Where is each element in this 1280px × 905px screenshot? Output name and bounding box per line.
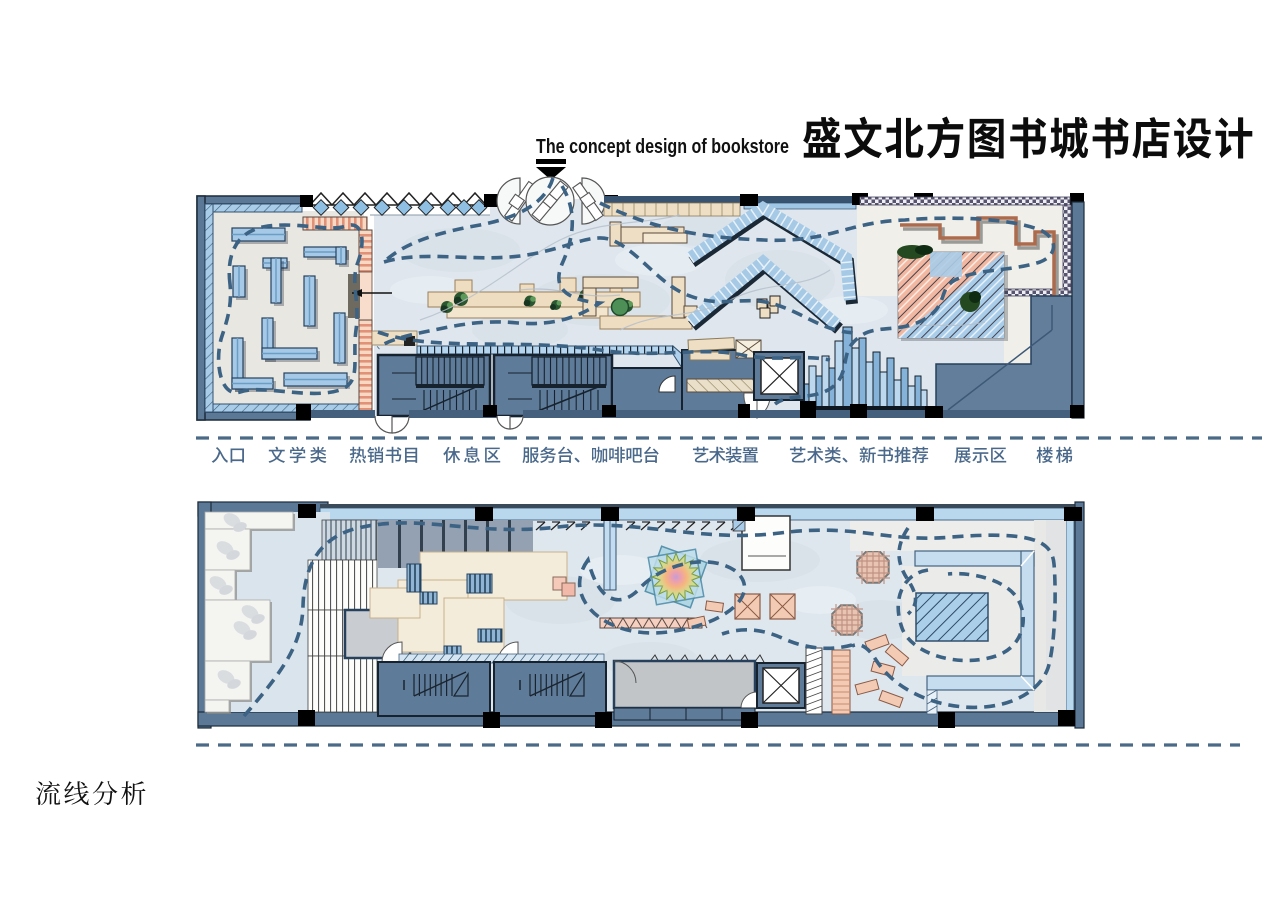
svg-text:The concept design of bookstor: The concept design of bookstore [536,135,789,158]
